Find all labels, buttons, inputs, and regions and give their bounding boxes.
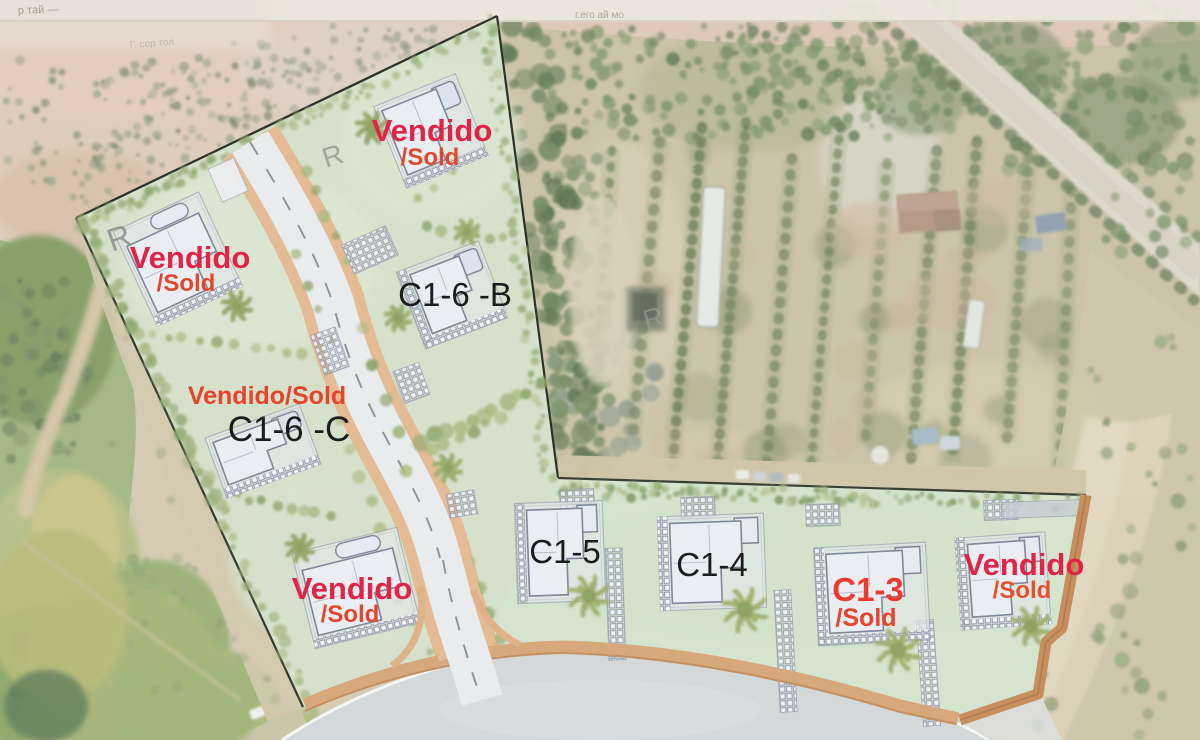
svg-text:C1-3: C1-3: [832, 571, 904, 608]
svg-text:Vendido: Vendido: [372, 113, 493, 148]
svg-text:/Sold: /Sold: [835, 604, 896, 632]
svg-text:C1-5: C1-5: [529, 533, 601, 570]
svg-text:Vendido/Sold: Vendido/Sold: [188, 382, 346, 410]
svg-text:/Sold: /Sold: [157, 270, 216, 297]
svg-text:/Sold: /Sold: [993, 577, 1052, 604]
svg-text:C1-4: C1-4: [676, 546, 748, 583]
svg-text:/Sold: /Sold: [401, 144, 460, 171]
svg-text:C1-6 -B: C1-6 -B: [398, 276, 512, 313]
svg-text:C1-6 -C: C1-6 -C: [228, 410, 351, 449]
svg-text:/Sold: /Sold: [321, 601, 380, 628]
